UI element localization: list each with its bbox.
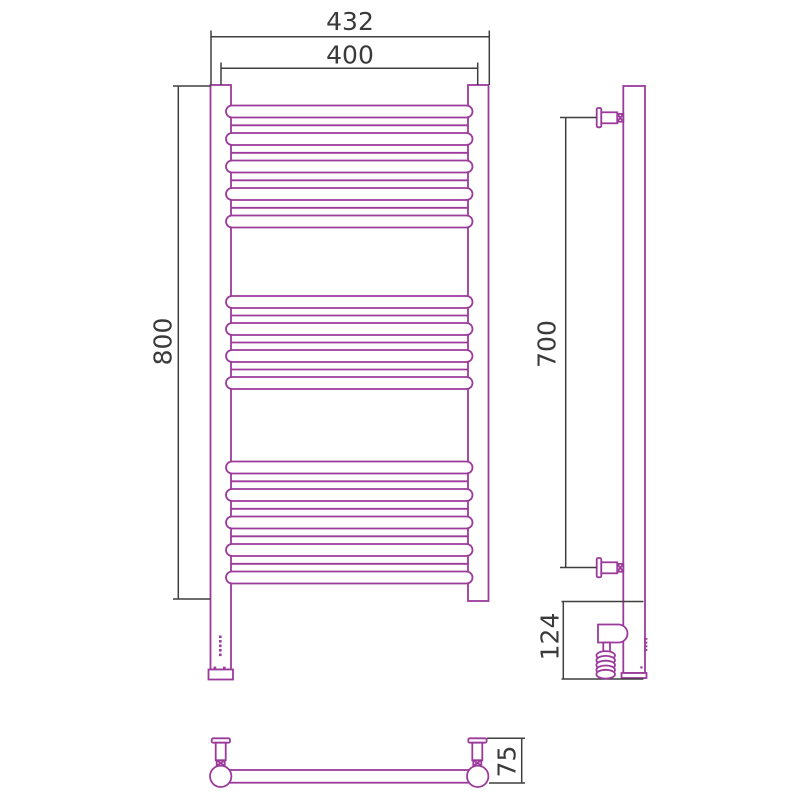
dim-432-label: 432 <box>326 7 374 36</box>
rung <box>226 133 473 145</box>
heater-housing <box>598 625 628 643</box>
wall-bracket-bottom <box>597 558 624 577</box>
front-left-post-end-cap <box>209 670 234 680</box>
rung <box>226 323 473 335</box>
bottom-right-post-section <box>467 766 488 787</box>
dim-800-label: 800 <box>149 318 178 366</box>
rung <box>226 161 473 173</box>
wall-bracket-bottom-view-right <box>468 738 486 765</box>
rung <box>226 188 473 200</box>
wall-bracket-bottom-view-left <box>212 738 230 765</box>
rung <box>226 377 473 389</box>
dim-700-label: 700 <box>533 320 562 368</box>
drawing-canvas: 432 400 800 700 124 75 <box>0 0 800 800</box>
side-view <box>597 86 648 678</box>
dim-124-label: 124 <box>536 613 565 661</box>
rung <box>226 350 473 362</box>
bottom-tube <box>222 770 476 783</box>
rung <box>226 106 473 118</box>
towel-rail-drawing: 432 400 800 700 124 75 <box>0 0 800 800</box>
rung <box>226 296 473 308</box>
dim-400-label: 400 <box>326 41 374 70</box>
rung <box>226 544 473 556</box>
front-view <box>209 85 489 680</box>
rung <box>226 462 473 474</box>
coiled-cord <box>596 651 615 679</box>
bottom-view <box>210 738 488 787</box>
bottom-left-post-section <box>210 766 231 787</box>
wall-bracket-top <box>597 108 624 127</box>
rung <box>226 216 473 228</box>
side-post <box>623 86 645 673</box>
dim-75-label: 75 <box>493 746 522 778</box>
rung <box>226 517 473 529</box>
rung <box>226 489 473 501</box>
side-post-end-cap <box>622 673 647 678</box>
rung <box>226 572 473 584</box>
